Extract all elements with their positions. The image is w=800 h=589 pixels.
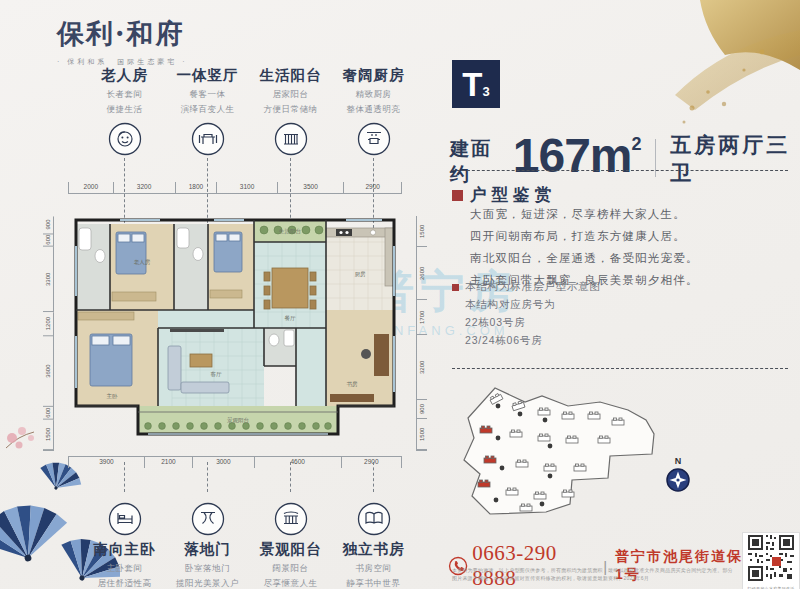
dashed-separator [452,170,788,171]
book-icon [357,502,391,536]
appreciation-line: 大面宽，短进深，尽享榜样大家人生。 [470,207,699,222]
red-square-bullet [452,284,459,291]
appreciation-line: 南北双阳台，全屋通透，备受阳光宠爱。 [470,251,699,266]
brand-title: 保利·和府 [57,16,188,52]
dim-label: 3100 [216,182,277,194]
feature-line: 书房空间 [356,563,392,575]
area-value: 167m2 [513,128,641,183]
area-prefix: 建面约 [450,136,507,188]
dimension-chain-left: 900 600 3300 1200 3600 600 1500 [43,216,54,451]
callout-connector [207,462,208,492]
dim-label: 2600 [416,247,427,300]
feature-line: 长者套间 [107,89,143,101]
dining-table-icon [191,122,225,156]
dim-label: 1500 [416,419,427,450]
note-line: 本结构对应房号为 [465,298,555,312]
room-label: 客厅 [211,371,223,378]
room-label: 书房 [347,381,359,387]
qr-code-block: 扫码开启山水府美好生活 [742,532,800,589]
dim-label: 900 [43,216,54,234]
site-plan-map: N [450,376,760,541]
dim-label: 1200 [43,312,54,336]
kitchen-icon [357,122,391,156]
feature-title: 南向主卧 [94,540,156,559]
dim-label: 1500 [416,216,427,247]
feature-line: 便捷生活 [107,104,143,116]
feature-title: 奢阔厨房 [343,66,405,85]
feature-line: 主卧套间 [107,563,143,575]
feature-line: 揽阳光美景入户 [176,578,239,589]
feature-line: 卧室落地门 [185,563,230,575]
compass-icon: N [667,456,689,491]
feature-line: 尽享惬意人生 [264,578,318,589]
feature-line: 精致厨房 [356,89,392,101]
feature-title: 老人房 [101,66,148,85]
feature-line: 餐客一体 [190,89,226,101]
dim-label: 2000 [68,182,113,194]
appreciation-header: 户型鉴赏 [452,184,556,206]
feature-view-balcony: 景观阳台 阔景阳台 尽享惬意人生 [249,460,332,589]
room-label: 老人房 [134,259,151,265]
feature-floor-door: 落地门 卧室落地门 揽阳光美景入户 [166,460,249,589]
balcony-rail-icon [274,122,308,156]
unit-type-number: 3 [482,84,489,99]
dim-label: 3200 [113,182,175,194]
elder-icon [108,122,142,156]
vertical-divider [655,139,657,177]
room-count-label: 五房两厅三卫 [670,131,800,187]
compass-label: N [675,456,682,466]
room-label: 主卧 [107,393,119,399]
feature-line: 阔景阳台 [273,563,309,575]
feature-study: 独立书房 书房空间 静享书中世界 [332,460,415,589]
dim-label: 900 [416,400,427,419]
feature-line: 静享书中世界 [347,578,401,589]
view-balcony-icon [274,502,308,536]
appreciation-title: 户型鉴赏 [470,184,556,206]
area-superscript: 2 [632,134,641,154]
note-line: 本结构为标准层户型示意图 [452,280,601,294]
dim-label: 3200 [416,335,427,400]
feature-title: 生活阳台 [260,66,322,85]
floorplan-panel: 2000 3200 1800 3100 3500 2900 900 600 33… [58,180,412,480]
feature-title: 一体竖厅 [177,66,239,85]
brand-logo: 保利·和府 · 保利和系 国际生态豪宅 · [57,16,188,67]
dimension-chain-top: 2000 3200 1800 3100 3500 2900 [68,182,402,194]
dimension-chain-right: 1500 2600 1700 3200 900 1500 [416,216,427,451]
room-label: 餐厅 [285,315,297,321]
note-line: 22栋03号房 [465,316,525,330]
callout-connector [124,462,125,492]
feature-title: 落地门 [184,540,231,559]
dim-label: 3500 [277,182,343,194]
feature-title: 独立书房 [343,540,405,559]
unit-type-badge: T 3 [452,60,500,108]
feature-line: 整体通透明亮 [347,104,401,116]
disclaimer-fine-print: 本资料为要约邀请，以上户型图仅供参考，所有面积均为建筑面积，最终以政府批准文件及… [452,566,736,582]
qr-code [748,535,794,581]
feature-master-bedroom: 南向主卧 主卧套间 居住舒适性高 [83,460,166,589]
dim-label: 1800 [175,182,217,194]
dim-label: 600 [43,234,54,247]
dashed-separator [452,368,788,369]
feature-line: 演绎百变人生 [181,104,235,116]
dim-label: 1700 [416,300,427,335]
room-label: 生活阳台 [279,228,301,235]
feature-line: 居家阳台 [273,89,309,101]
unit-type-letter: T [462,68,482,101]
floorplan-drawing: 老人房 生活阳台 餐厅 厨房 客厅 主卧 书房 景观阳台 [68,216,402,450]
room-label: 厨房 [355,271,367,277]
room-label: 景观阳台 [227,417,249,424]
dim-label: 600 [43,407,54,420]
callout-connector [290,462,291,492]
area-summary: 建面约 167m2 五房两厅三卫 [450,122,800,188]
callout-connector [373,462,374,492]
appreciation-line: 四开间朝南布局，打造东方健康人居。 [470,229,699,244]
feature-line: 居住舒适性高 [98,578,152,589]
red-square-bullet [452,190,463,201]
dim-label: 3600 [43,336,54,407]
dim-label: 3300 [43,247,54,312]
bed-icon [108,502,142,536]
curtain-door-icon [191,502,225,536]
dim-label: 1500 [43,420,54,450]
feature-title: 景观阳台 [260,540,322,559]
note-line: 23/24栋06号房 [465,334,542,348]
feature-row-bottom: 南向主卧 主卧套间 居住舒适性高 落地门 卧室落地门 揽阳光美景入户 景观阳台 … [83,460,415,589]
dim-label: 2900 [343,182,401,194]
feature-line: 方便日常储纳 [264,104,318,116]
